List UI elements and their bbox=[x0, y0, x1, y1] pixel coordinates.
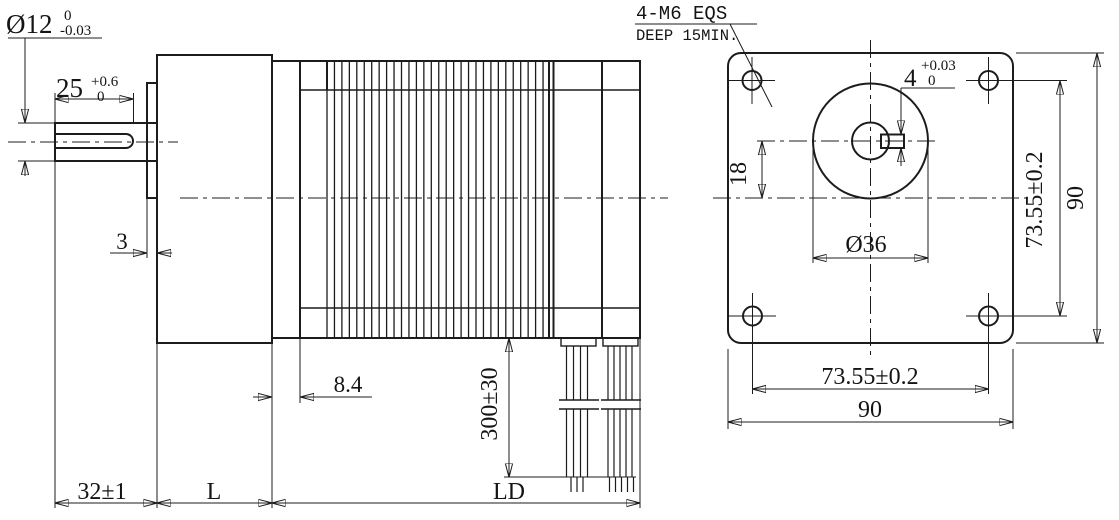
dim-shaft-extension-text: 32±1 bbox=[77, 479, 126, 505]
mounting-note: 4-M6 EQS DEEP 15MIN. bbox=[635, 3, 772, 107]
dim-text: 73.55±0.2 bbox=[821, 364, 918, 390]
tolerance-lower: 0 bbox=[97, 89, 105, 105]
dim-bottom-chain: 32±1 L LD bbox=[55, 338, 640, 508]
dim-keyway-length: 25 +0.6 0 bbox=[55, 73, 134, 508]
pilot-boss bbox=[147, 83, 157, 198]
dim-text: 18 bbox=[726, 162, 752, 186]
tolerance-upper: +0.03 bbox=[921, 58, 956, 74]
mounting-hole-top-left bbox=[729, 57, 775, 104]
dim-text: 73.55±0.2 bbox=[1022, 151, 1048, 248]
gearbox-body bbox=[157, 55, 272, 343]
dim-text: 8.4 bbox=[334, 372, 363, 397]
note-line2: DEEP 15MIN. bbox=[636, 27, 738, 45]
dim-lead-length: 300±30 bbox=[477, 339, 636, 478]
dim-pilot-depth: 3 bbox=[110, 198, 172, 258]
dim-text: 300±30 bbox=[477, 367, 503, 440]
wire-grommet-left bbox=[561, 338, 596, 346]
dim-hole-pitch-vertical: 73.55±0.2 bbox=[1022, 81, 1060, 316]
wire-bundles bbox=[567, 346, 634, 492]
dim-text: 3 bbox=[116, 229, 128, 254]
dim-text: 90 bbox=[1063, 186, 1089, 210]
side-view: Ø12 0 -0.03 25 +0.6 0 3 8.4 bbox=[6, 8, 668, 508]
gearmotor-outline-drawing: Ø12 0 -0.03 25 +0.6 0 3 8.4 bbox=[0, 0, 1119, 520]
dim-text: 25 bbox=[56, 73, 83, 103]
tolerance-upper: +0.6 bbox=[91, 74, 119, 90]
dim-text: Ø12 bbox=[6, 9, 53, 39]
dim-shaft-offset: 18 bbox=[726, 142, 762, 198]
dim-gearbox-length-text: L bbox=[207, 479, 222, 505]
note-line1: 4-M6 EQS bbox=[636, 3, 727, 25]
tolerance-lower: 0 bbox=[928, 73, 936, 89]
dim-text: 90 bbox=[858, 397, 882, 423]
tolerance-lower: -0.03 bbox=[60, 23, 91, 39]
front-view: 4-M6 EQS DEEP 15MIN. 4 +0.03 0 18 Ø36 bbox=[635, 3, 1104, 429]
motor-fins bbox=[327, 61, 543, 338]
dim-body-length-text: LD bbox=[493, 479, 525, 505]
dim-hole-pitch-horizontal: 73.55±0.2 bbox=[753, 364, 989, 390]
dim-text: Ø36 bbox=[845, 232, 886, 258]
mounting-hole-top-right bbox=[966, 57, 1067, 104]
dim-endbell-depth: 8.4 bbox=[253, 338, 372, 403]
dim-text: 4 bbox=[904, 65, 917, 92]
wire-grommet-right bbox=[603, 338, 638, 346]
tolerance-upper: 0 bbox=[64, 8, 72, 24]
drawing-canvas: Ø12 0 -0.03 25 +0.6 0 3 8.4 bbox=[0, 0, 1119, 520]
keyway-slot bbox=[55, 134, 133, 148]
